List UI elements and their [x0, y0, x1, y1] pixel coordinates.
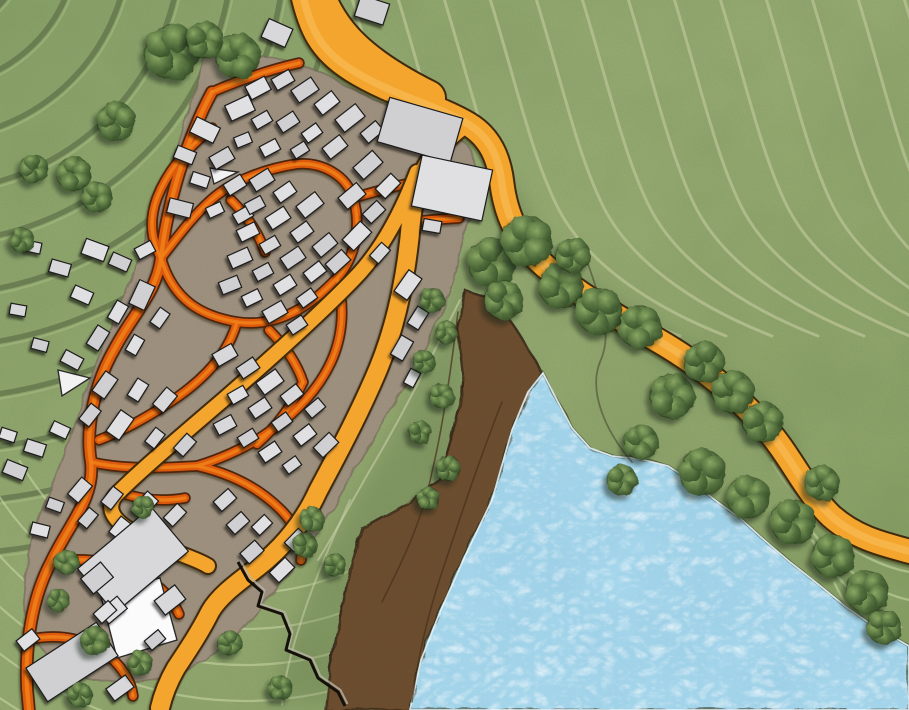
tree-canopy-blob — [634, 442, 652, 460]
tree-canopy-blob — [822, 473, 840, 491]
tree-canopy-blob — [61, 173, 79, 191]
tree-canopy-blob — [832, 551, 854, 573]
tree-canopy-blob — [9, 235, 21, 247]
tree-canopy-blob — [294, 534, 306, 546]
tree-canopy-blob — [845, 584, 867, 606]
tree-canopy-blob — [50, 589, 61, 600]
tree-canopy-blob — [728, 391, 750, 413]
tree-canopy-blob — [224, 630, 236, 642]
tree-canopy-blob — [742, 408, 763, 429]
tree-canopy-blob — [733, 497, 755, 519]
tree-canopy-blob — [435, 329, 446, 340]
tree-canopy-blob — [409, 423, 420, 434]
tree-canopy-blob — [608, 467, 624, 483]
tree-canopy-blob — [92, 640, 107, 655]
tree-canopy-blob — [187, 27, 206, 46]
tree-canopy-blob — [301, 517, 313, 529]
tree-canopy-blob — [272, 688, 284, 700]
tree-canopy-blob — [524, 237, 550, 263]
tree-canopy-blob — [448, 460, 460, 472]
tree-canopy-blob — [778, 499, 801, 522]
tree-canopy-blob — [163, 24, 191, 52]
village-map-svg — [0, 0, 909, 710]
tree-canopy-blob — [127, 656, 139, 668]
tree-canopy-blob — [96, 194, 112, 210]
tree-canopy-blob — [573, 247, 591, 265]
tree-canopy-blob — [141, 497, 152, 508]
tree-canopy-blob — [116, 108, 136, 128]
tree-canopy-blob — [335, 559, 346, 570]
tree-canopy-blob — [79, 685, 91, 697]
tree-canopy-blob — [651, 391, 674, 414]
tree-canopy-blob — [696, 341, 717, 362]
tree-canopy-blob — [421, 351, 432, 362]
tree-canopy-blob — [25, 154, 40, 169]
tree-canopy-blob — [628, 328, 650, 350]
tree-canopy-blob — [478, 236, 503, 261]
tree-canopy-blob — [537, 275, 560, 298]
tree-canopy-blob — [487, 282, 507, 302]
tree-canopy-blob — [419, 497, 430, 508]
tree-canopy-blob — [438, 396, 450, 408]
tree-canopy-blob — [702, 455, 726, 479]
tree-canopy-blob — [432, 296, 444, 308]
tree-canopy-blob — [232, 56, 255, 79]
map-canvas — [0, 0, 909, 710]
building — [9, 303, 27, 317]
tree-canopy-blob — [880, 610, 898, 628]
tree-canopy-blob — [596, 290, 620, 314]
tree-canopy-blob — [61, 562, 73, 574]
building — [422, 219, 442, 234]
